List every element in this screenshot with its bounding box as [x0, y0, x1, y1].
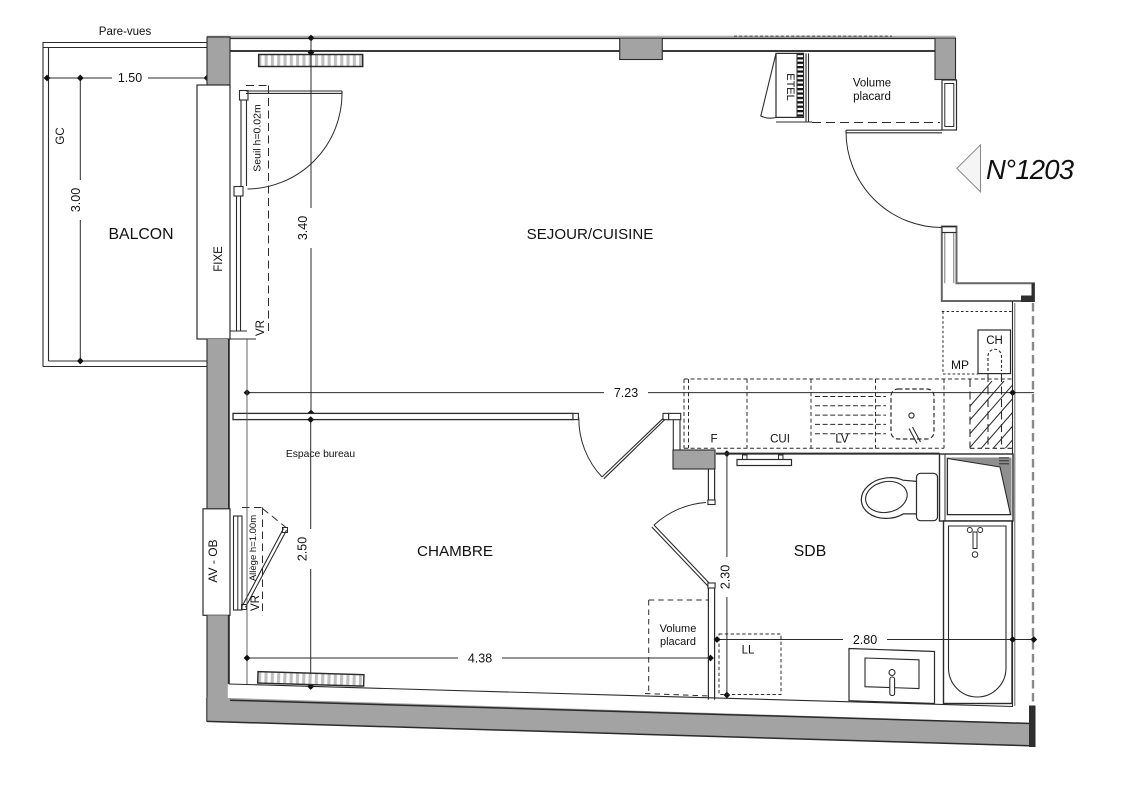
svg-text:2.30: 2.30 — [719, 565, 733, 589]
svg-text:N°1203: N°1203 — [986, 154, 1075, 185]
svg-text:placard: placard — [660, 636, 696, 648]
svg-text:MP: MP — [951, 358, 969, 372]
svg-text:CH: CH — [986, 335, 1003, 347]
svg-text:Seuil h=0.02m: Seuil h=0.02m — [252, 104, 264, 172]
svg-text:Volume: Volume — [853, 78, 891, 90]
svg-text:LL: LL — [742, 645, 755, 657]
svg-text:SDB: SDB — [794, 543, 826, 560]
svg-text:SEJOUR/CUISINE: SEJOUR/CUISINE — [527, 226, 654, 243]
svg-text:2.50: 2.50 — [296, 537, 310, 561]
svg-text:LV: LV — [835, 434, 849, 446]
svg-text:3.40: 3.40 — [296, 216, 310, 240]
svg-text:CUI: CUI — [770, 434, 790, 446]
svg-text:VR: VR — [250, 595, 262, 611]
svg-text:1.50: 1.50 — [118, 71, 142, 85]
svg-text:BALCON: BALCON — [109, 226, 174, 243]
svg-text:CHAMBRE: CHAMBRE — [417, 543, 493, 560]
svg-text:Volume: Volume — [660, 623, 697, 635]
svg-text:AV - OB: AV - OB — [206, 539, 220, 582]
svg-text:GC: GC — [55, 127, 67, 144]
svg-text:F: F — [710, 434, 717, 446]
svg-text:VR: VR — [255, 320, 267, 336]
svg-text:4.38: 4.38 — [468, 652, 492, 666]
svg-text:Allège h=1.00m: Allège h=1.00m — [248, 515, 259, 581]
svg-text:7.23: 7.23 — [614, 386, 638, 400]
svg-text:placard: placard — [853, 91, 891, 103]
svg-text:Pare-vues: Pare-vues — [99, 26, 152, 38]
svg-text:ETEL: ETEL — [784, 73, 796, 101]
svg-text:2.80: 2.80 — [853, 633, 877, 647]
svg-text:FIXE: FIXE — [213, 246, 225, 272]
svg-text:Espace bureau: Espace bureau — [286, 449, 356, 460]
svg-text:3.00: 3.00 — [69, 188, 83, 212]
